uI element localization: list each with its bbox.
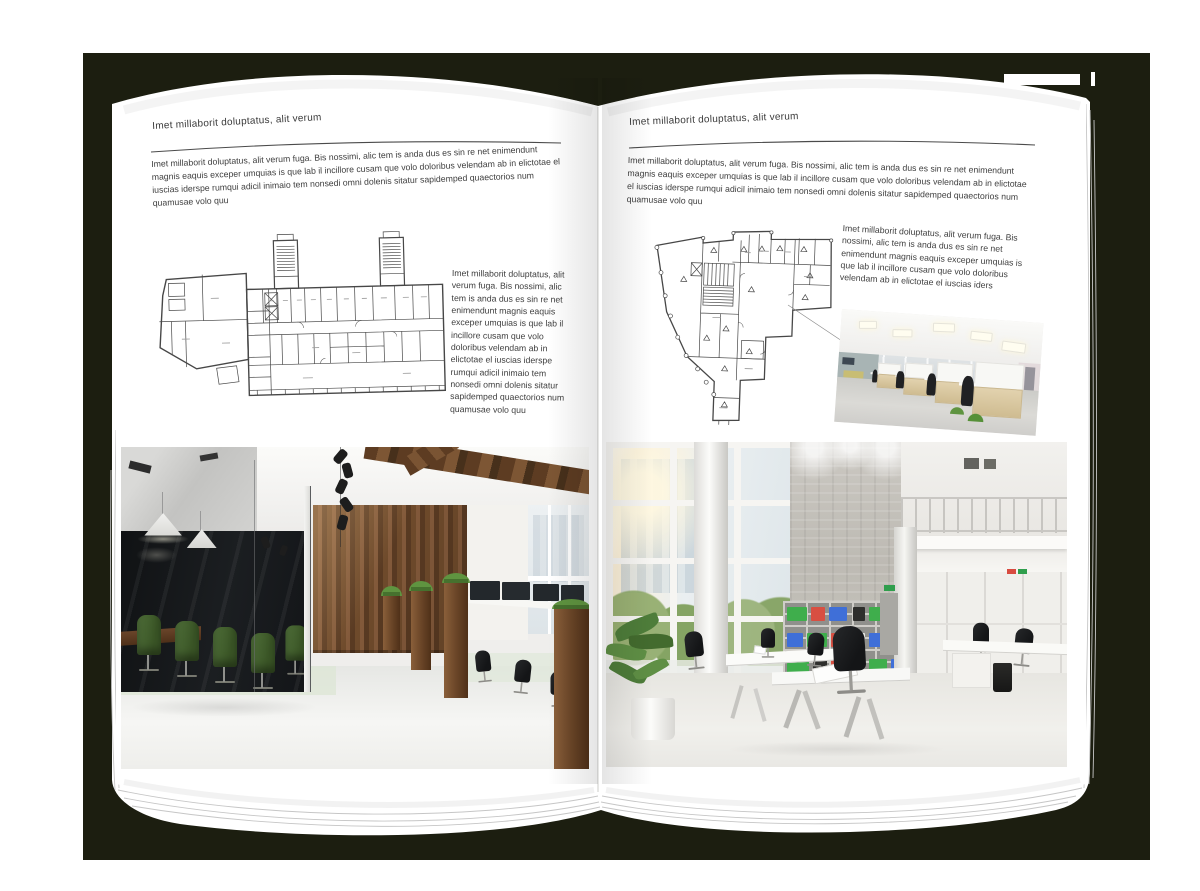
monitor — [470, 581, 500, 600]
waste-bin — [993, 663, 1011, 692]
right-header-rule — [627, 136, 1037, 152]
safety-sign — [1018, 569, 1027, 574]
office-chair — [807, 632, 825, 656]
office-photo-small — [834, 309, 1043, 436]
left-floor-plan — [149, 222, 450, 426]
green-chair — [213, 627, 237, 667]
left-sidebar-paragraph: Imet millaborit doluptatus, alit verum f… — [450, 267, 571, 417]
grass-planter — [444, 582, 468, 698]
office-chair — [761, 628, 775, 648]
monitor — [533, 584, 559, 601]
glass-reflection-panel — [121, 447, 257, 537]
vent-grille — [964, 458, 979, 470]
desk-cabinet — [952, 653, 991, 688]
office-chair — [832, 625, 866, 671]
callout-leader-line — [786, 303, 848, 347]
office-photo-left — [121, 447, 589, 769]
pendant-lamp — [162, 492, 163, 515]
plant — [606, 605, 689, 751]
ceiling-light — [892, 329, 912, 337]
glass-frame — [254, 460, 255, 692]
white-wall — [467, 505, 528, 640]
office-chair — [474, 650, 491, 672]
grass-planter — [411, 590, 431, 670]
ceiling-light — [933, 323, 955, 333]
plant — [950, 404, 965, 415]
safety-sign — [1007, 569, 1016, 574]
monitor — [502, 582, 530, 600]
grass-planter — [383, 595, 400, 650]
magazine-spread-mockup: Imet millaborit doluptatus, alit verum I… — [0, 0, 1200, 891]
mezzanine — [901, 442, 1067, 572]
plant — [968, 410, 985, 422]
office-photo-right — [606, 442, 1067, 767]
plant-pot — [631, 698, 675, 740]
office-chair — [684, 631, 705, 658]
exit-sign — [884, 585, 895, 591]
right-intro-paragraph: Imet millaborit doluptatus, alit verum f… — [627, 154, 1028, 217]
grass-planter — [554, 608, 589, 769]
green-chair — [137, 615, 161, 655]
right-sidebar-paragraph: Imet millaborit doluptatus, alit verum f… — [840, 222, 1039, 295]
vent-grille — [984, 459, 996, 469]
green-chair — [175, 621, 199, 661]
office-chair — [514, 659, 532, 683]
ceiling-light — [859, 321, 877, 329]
